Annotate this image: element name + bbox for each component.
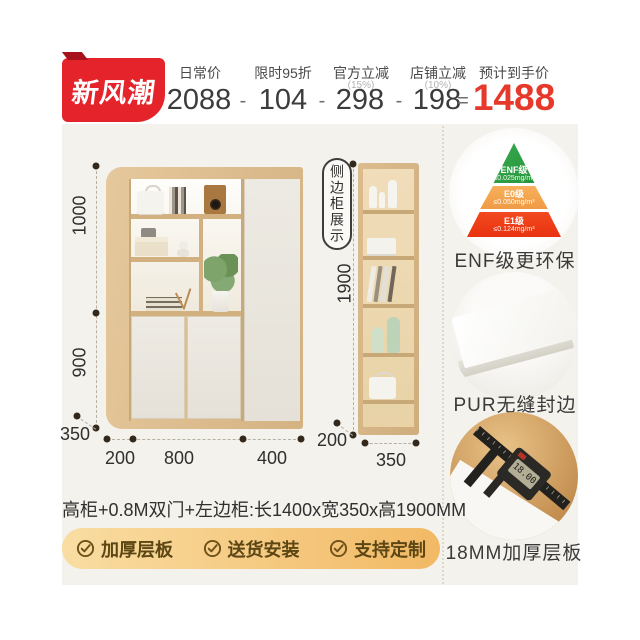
check-circle-icon bbox=[329, 539, 348, 558]
dim-line-horizontal-side bbox=[365, 443, 416, 444]
product-spec-text: 高柜+0.8M双门+左边柜:长1400x宽350x高1900MM bbox=[62, 496, 440, 522]
operator-minus-1: - bbox=[240, 90, 247, 113]
side-cabinet-tag: 侧边柜展示 bbox=[322, 158, 352, 250]
main-cabinet-shelf bbox=[131, 257, 201, 262]
badge-fold-decoration bbox=[62, 52, 88, 60]
decor-speaker-cone bbox=[210, 199, 221, 210]
decor-vase bbox=[379, 192, 385, 208]
decor-figurine-body bbox=[177, 249, 189, 257]
operator-equals: = bbox=[457, 90, 469, 113]
pyramid-grade-e0: E0级 bbox=[504, 189, 524, 199]
pyramid-level-e1: E1级 ≤0.124mg/m³ bbox=[467, 212, 561, 237]
check-circle-icon bbox=[203, 539, 222, 558]
dim-dot bbox=[130, 436, 137, 443]
dim-dot bbox=[93, 310, 100, 317]
dim-label-900: 900 bbox=[70, 338, 91, 388]
dim-label-350-main: 350 bbox=[56, 424, 94, 445]
feature-item-delivery-install: 送货安装 bbox=[203, 536, 300, 562]
eco-grade-circle: ENF级 ≤0.025mg/m³ E0级 ≤0.050mg/m³ E1级 ≤0.… bbox=[449, 128, 579, 258]
price-value-final: 1488 bbox=[473, 77, 555, 119]
decor-basket bbox=[369, 377, 396, 399]
side-cabinet-shelf bbox=[363, 400, 414, 404]
feature-label: 支持定制 bbox=[354, 536, 426, 562]
check-circle-icon bbox=[76, 539, 95, 558]
dim-dot bbox=[104, 436, 111, 443]
pyramid-limit-enf: ≤0.025mg/m³ bbox=[493, 175, 534, 183]
caliper-circle: 18.00 bbox=[450, 412, 578, 540]
dim-label-400-main: 400 bbox=[254, 448, 290, 469]
pyramid-level-enf: ENF级 ≤0.025mg/m³ bbox=[467, 143, 561, 183]
dim-label-200-main: 200 bbox=[102, 448, 138, 469]
dim-dot bbox=[93, 163, 100, 170]
pyramid-grade-e1: E1级 bbox=[504, 216, 524, 226]
main-cabinet-door-right bbox=[187, 316, 241, 419]
dim-dot bbox=[413, 440, 420, 447]
main-cabinet-tall-door bbox=[244, 179, 300, 421]
decor-plant-pot bbox=[212, 291, 229, 312]
dim-label-200-side: 200 bbox=[312, 430, 352, 451]
decor-green-vase bbox=[387, 317, 400, 353]
decor-white-box bbox=[367, 238, 396, 256]
pyramid-limit-e0: ≤0.050mg/m³ bbox=[493, 199, 534, 207]
brand-badge: 新风潮 bbox=[62, 58, 165, 122]
feature-item-thick-shelf: 加厚层板 bbox=[76, 536, 173, 562]
decor-plant-leaves bbox=[204, 254, 238, 292]
feature-label: 加厚层板 bbox=[101, 536, 173, 562]
dim-label-1000: 1000 bbox=[70, 186, 91, 246]
dim-label-1900: 1900 bbox=[335, 254, 356, 314]
side-cabinet-shelf bbox=[363, 256, 414, 260]
decor-green-vase bbox=[372, 327, 383, 353]
dim-label-350-side: 350 bbox=[372, 450, 410, 471]
main-cabinet-door-left bbox=[131, 316, 185, 419]
dim-dot bbox=[298, 436, 305, 443]
caption-thick-board: 18MM加厚层板 bbox=[433, 538, 595, 565]
price-value-discount95: 104 bbox=[259, 84, 307, 117]
price-label-discount95: 限时95折 bbox=[254, 63, 312, 83]
side-cabinet-shelf bbox=[363, 210, 414, 214]
dim-dot bbox=[350, 161, 357, 168]
operator-minus-2: - bbox=[319, 90, 326, 113]
caliper-screen: 18.00 bbox=[507, 458, 540, 490]
decor-books-upright bbox=[169, 187, 186, 214]
decor-books-stack bbox=[146, 297, 182, 311]
dim-label-800-main: 800 bbox=[161, 448, 197, 469]
pyramid-limit-e1: ≤0.124mg/m³ bbox=[493, 226, 534, 234]
decor-vase bbox=[369, 186, 377, 208]
brand-name: 新风潮 bbox=[69, 71, 158, 110]
feature-bar: 加厚层板 送货安装 支持定制 bbox=[62, 528, 440, 569]
decor-box-stack bbox=[135, 237, 168, 256]
dim-line-vertical-main bbox=[96, 166, 97, 428]
dim-dot bbox=[334, 420, 341, 427]
decor-bag bbox=[137, 191, 164, 214]
dim-dot bbox=[240, 436, 247, 443]
main-cabinet-divider bbox=[199, 219, 203, 316]
product-infographic: 新风潮 日常价 限时95折 官方立减 店铺立减 预计到手价 (15%) (10%… bbox=[0, 0, 640, 640]
pyramid-level-e0: E0级 ≤0.050mg/m³ bbox=[467, 186, 561, 209]
decor-vase bbox=[388, 180, 397, 208]
side-cabinet-shelf bbox=[363, 304, 414, 308]
main-cabinet-shelf bbox=[131, 214, 241, 219]
side-cabinet-shelf bbox=[363, 353, 414, 357]
price-value-daily: 2088 bbox=[167, 84, 232, 117]
edge-banding-circle bbox=[450, 272, 578, 400]
feature-label: 送货安装 bbox=[228, 536, 300, 562]
pyramid-grade-enf: ENF级 bbox=[500, 165, 527, 175]
operator-minus-3: - bbox=[396, 90, 403, 113]
caption-eco: ENF级更环保 bbox=[437, 246, 593, 273]
price-label-daily: 日常价 bbox=[179, 63, 221, 83]
dim-dot bbox=[74, 413, 81, 420]
dim-dot bbox=[362, 440, 369, 447]
price-value-shop: 198 bbox=[413, 84, 461, 117]
feature-item-customizable: 支持定制 bbox=[329, 536, 426, 562]
price-value-official: 298 bbox=[336, 84, 384, 117]
